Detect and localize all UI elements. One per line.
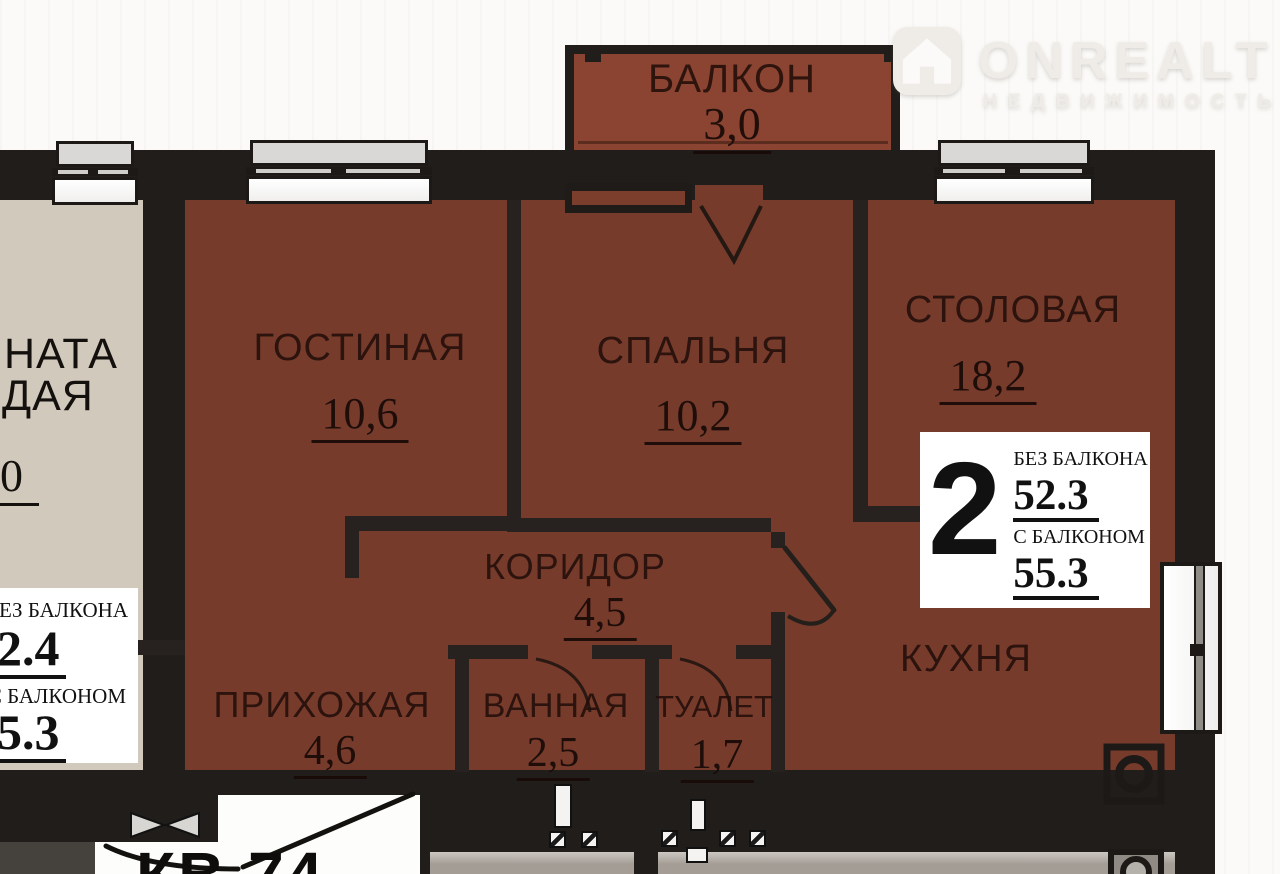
bedroom-balcony-window [565, 183, 692, 213]
wall-bedroom-bottom [507, 518, 771, 532]
balcony-door-opening [695, 185, 763, 200]
window-sill-outer [56, 141, 134, 167]
living-room-window [246, 140, 432, 204]
bathroom-area-value: 2,5 [517, 728, 590, 781]
common-area-right [658, 852, 1175, 874]
bedroom-area-value: 10,2 [645, 390, 742, 445]
wall-right [1175, 150, 1215, 874]
wall-bath-top-2 [592, 645, 672, 659]
riser-box [686, 847, 708, 863]
floor-plan: БАЛКОН 3,0 ГОСТИНАЯ 10,6 СПАЛЬНЯ 10,2 СТ… [0, 0, 1280, 874]
neighbor-room-label-line2: ДАЯ [2, 372, 94, 421]
neighbor-with-balcony-area: 35.3 [0, 706, 66, 763]
wall-bedroom-dining [853, 200, 868, 522]
hallway-label: ПРИХОЖАЯ [213, 684, 430, 726]
wall-left-separator [143, 150, 185, 812]
riser-marker [719, 830, 736, 847]
wall-bathroom-left [455, 645, 469, 772]
riser-slot [690, 799, 706, 831]
dining-room-window [934, 140, 1094, 204]
riser-slot [554, 784, 572, 828]
toilet-label: ТУАЛЕТ [655, 689, 773, 725]
wall-living-bedroom [507, 200, 521, 532]
dining-room-area-value: 18,2 [940, 350, 1037, 405]
no-balcony-area: 52.3 [1013, 473, 1147, 522]
window-mullion [52, 168, 138, 176]
window-sill-outer [250, 140, 428, 166]
with-balcony-area: 55.3 [1013, 551, 1147, 600]
apartment-number-label: КВ 74 [136, 838, 325, 874]
no-balcony-label: БЕЗ БАЛКОНА [1013, 448, 1147, 471]
wall-bottom-left-corner [0, 842, 95, 874]
kitchen-label: КУХНЯ [900, 638, 1032, 681]
window-sill-outer [938, 140, 1090, 166]
wall-corridor-v [345, 516, 359, 578]
living-room-label: ГОСТИНАЯ [254, 327, 467, 370]
wall-kitchen-jamb-top [771, 532, 785, 548]
bathroom-label: ВАННАЯ [483, 687, 630, 726]
wall-bath-top-1 [448, 645, 528, 659]
corridor-area-value: 4,5 [564, 588, 637, 641]
brand-tagline: НЕДВИЖИМОСТЬ [983, 91, 1280, 113]
kitchen-window [1160, 562, 1222, 734]
window-glass [572, 191, 685, 205]
bedroom-label: СПАЛЬНЯ [597, 330, 790, 373]
with-balcony-label: С БАЛКОНОМ [1013, 526, 1147, 549]
window-crossbar [1190, 644, 1205, 656]
window-mullion [934, 167, 1094, 175]
neighbor-no-balcony-area: 32.4 [0, 622, 66, 679]
rooms-count: 2 [928, 446, 1001, 608]
balcony-area-value: 3,0 [693, 96, 771, 154]
riser-marker [581, 831, 598, 848]
riser-marker [549, 831, 566, 848]
neighbor-summary-box: БЕЗ БАЛКОНА 32.4 С БАЛКОНОМ 35.3 [0, 588, 138, 763]
wall-corridor-h [345, 516, 521, 531]
wall-bath-top-3 [736, 645, 785, 659]
window-mullion [246, 167, 432, 175]
common-area-left [430, 852, 634, 874]
wall-bottom-left-chunk [0, 770, 218, 842]
window-sill-inner [52, 177, 138, 205]
wall-kitchen-left [771, 612, 785, 772]
house-icon [893, 27, 961, 95]
corridor-label: КОРИДОР [484, 546, 666, 588]
toilet-area-value: 1,7 [681, 730, 754, 783]
hallway-area-value: 4,6 [294, 726, 367, 779]
balcony-post-left [585, 47, 601, 62]
neighbor-area-value: 0 [0, 448, 39, 506]
window-sill-inner [934, 176, 1094, 204]
neighbor-window [52, 141, 138, 205]
window-sill-inner [246, 176, 432, 204]
onrealt-logo: ONREALT НЕДВИЖИМОСТЬ [893, 27, 1253, 122]
brand-name: ONREALT [978, 31, 1274, 91]
living-room-area-value: 10,6 [312, 388, 409, 443]
riser-marker [661, 830, 678, 847]
riser-marker [749, 830, 766, 847]
apartment-summary-box: 2 БЕЗ БАЛКОНА 52.3 С БАЛКОНОМ 55.3 [920, 432, 1150, 608]
dining-room-label: СТОЛОВАЯ [905, 289, 1121, 332]
